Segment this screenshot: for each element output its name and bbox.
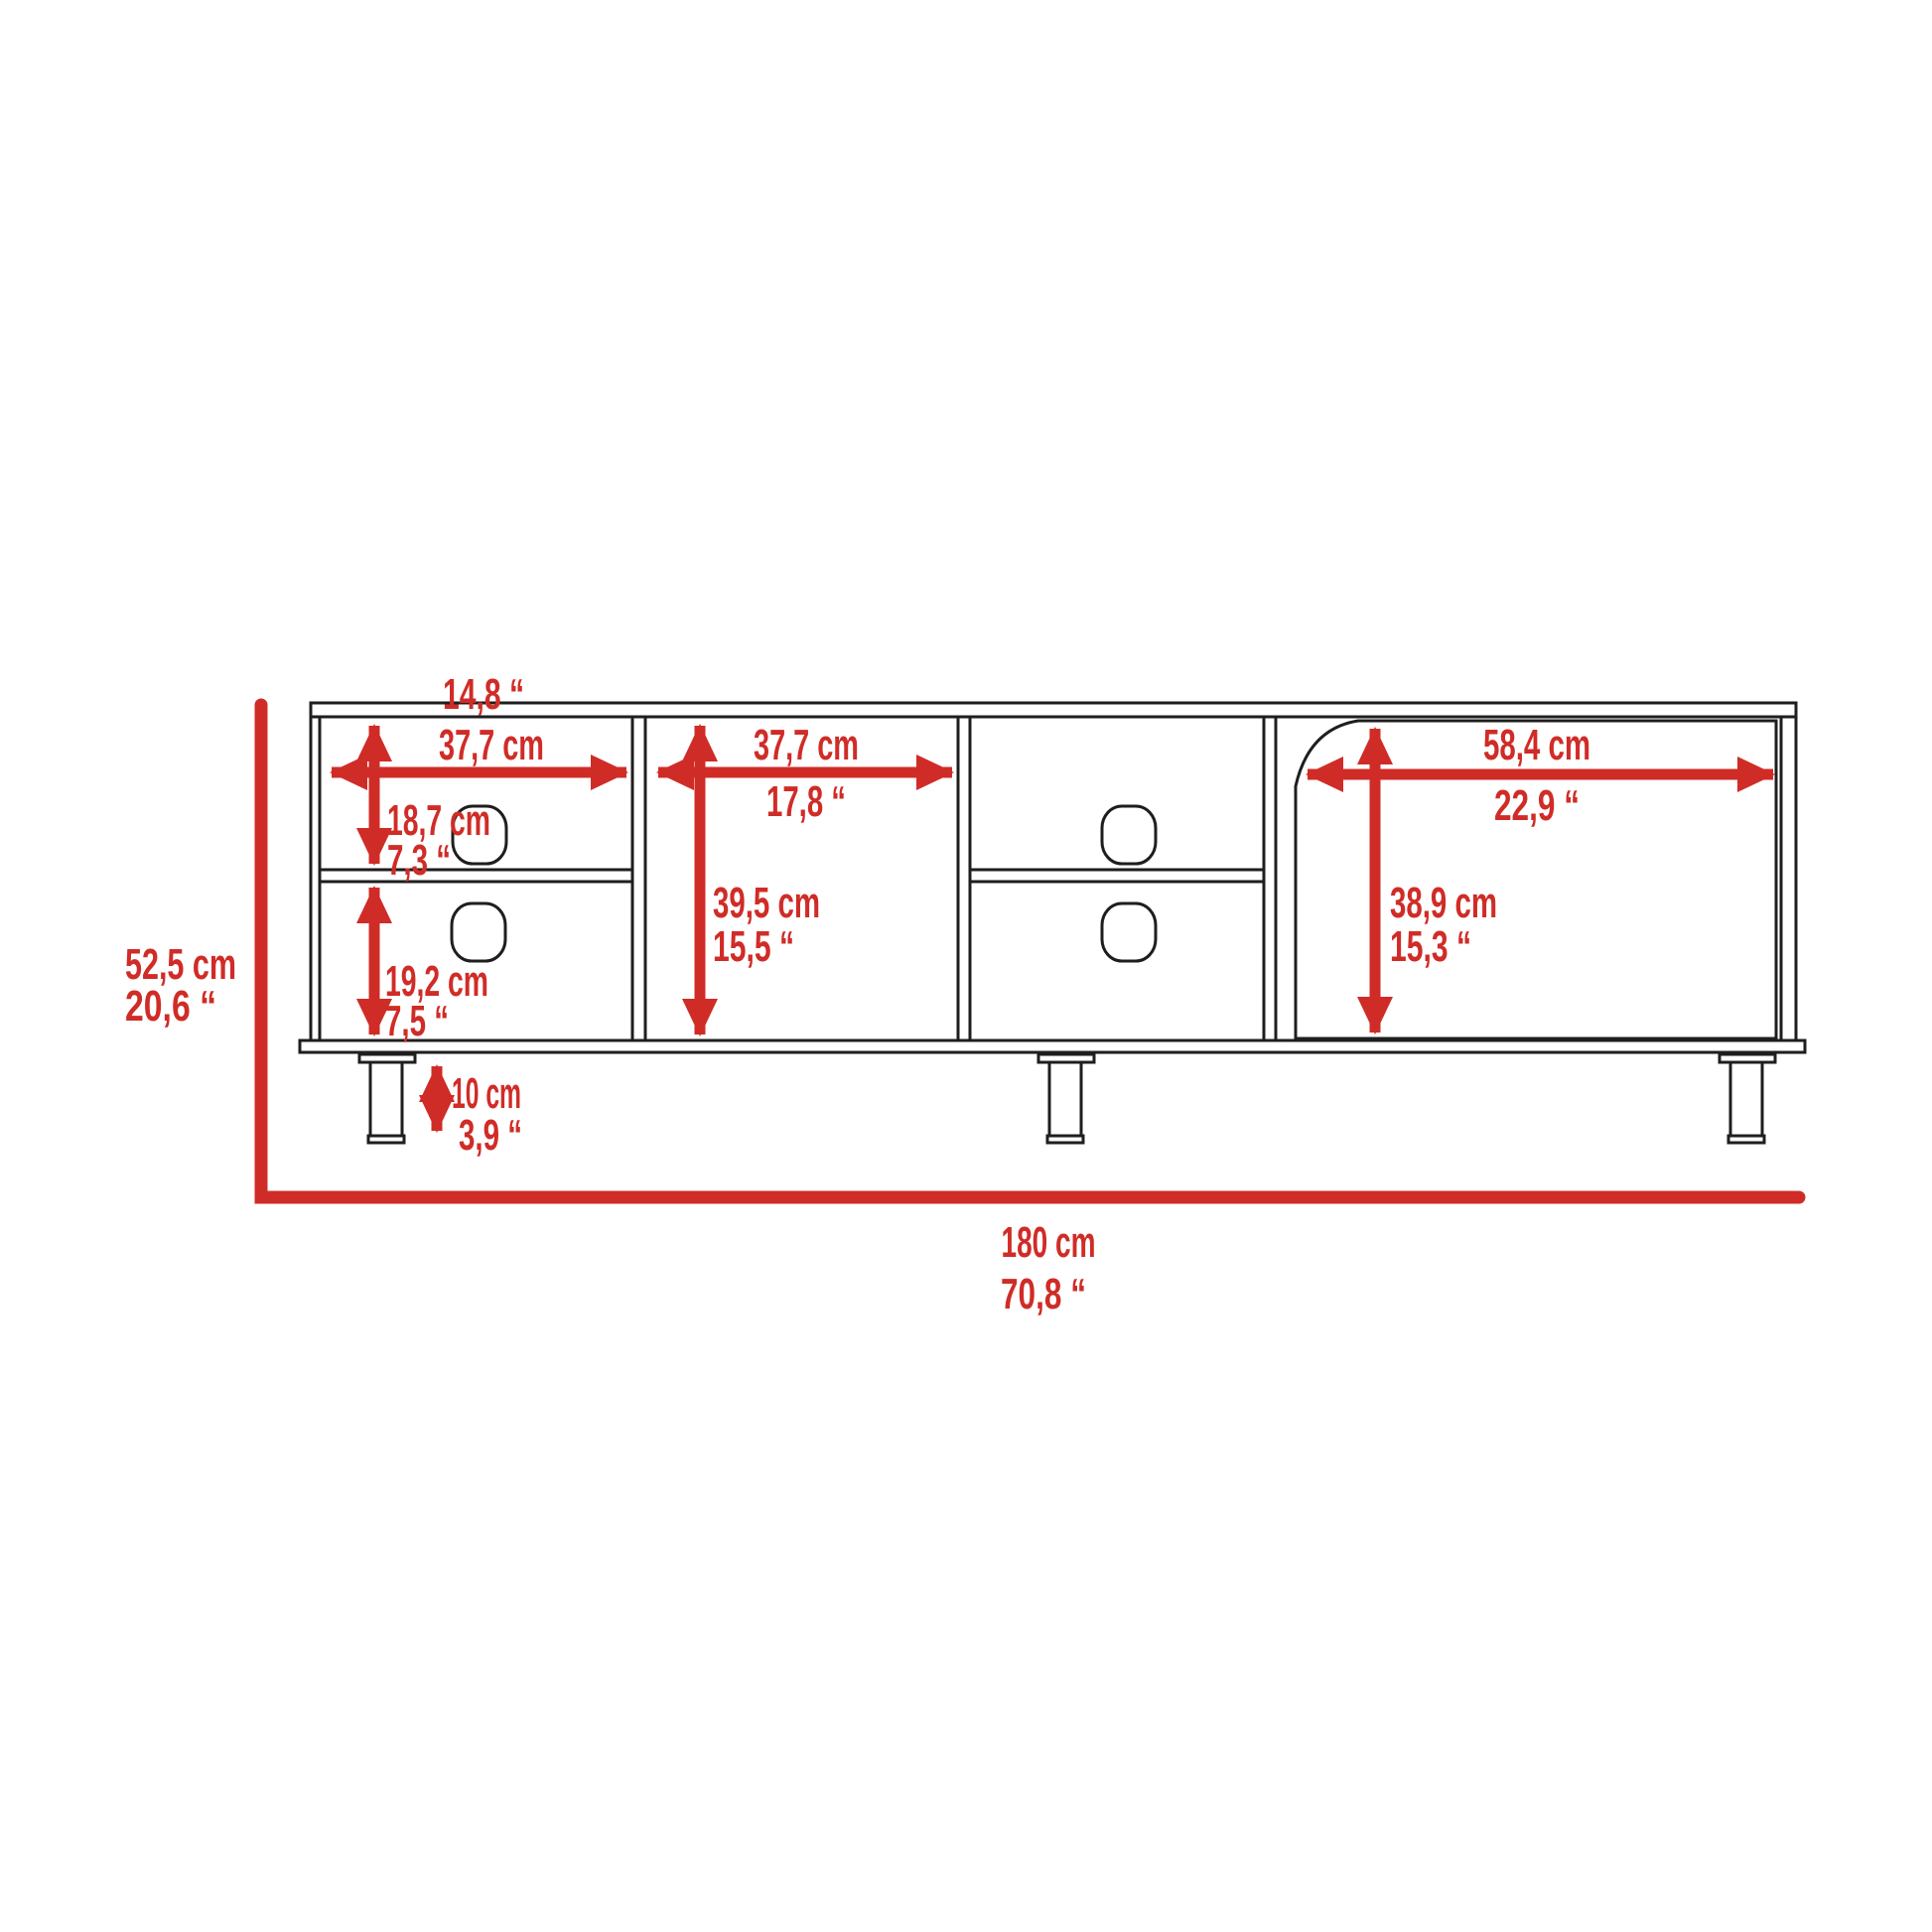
cable-hole-middle-upper bbox=[1102, 806, 1156, 864]
label-section1-width-in: 14,8 “ bbox=[443, 670, 524, 719]
label-lower-shelf-height-in: 7,5 “ bbox=[385, 997, 449, 1045]
label-door-height-cm: 38,9 cm bbox=[1390, 879, 1497, 927]
leg-left-cap bbox=[368, 1136, 404, 1143]
leg-right-cap bbox=[1728, 1136, 1764, 1143]
label-door-width-in: 22,9 “ bbox=[1494, 781, 1580, 830]
bottom-panel bbox=[300, 1040, 1805, 1052]
tv-stand-dimension-diagram: 14,8 “ 37,7 cm 37,7 cm 17,8 “ 58,4 cm 22… bbox=[0, 0, 1932, 1932]
label-door-width-cm: 58,4 cm bbox=[1483, 721, 1590, 769]
leg-left-body bbox=[370, 1062, 402, 1136]
label-overall-width-cm: 180 cm bbox=[1002, 1218, 1096, 1267]
leg-left bbox=[359, 1054, 415, 1143]
diagram-canvas: 14,8 “ 37,7 cm 37,7 cm 17,8 “ 58,4 cm 22… bbox=[0, 0, 1932, 1932]
label-upper-shelf-height-in: 7,3 “ bbox=[387, 836, 451, 885]
label-leg-height-in: 3,9 “ bbox=[459, 1111, 522, 1160]
leg-center-body bbox=[1049, 1062, 1081, 1136]
label-overall-width-in: 70,8 “ bbox=[1001, 1270, 1086, 1318]
label-inner-height-in: 15,5 “ bbox=[713, 922, 794, 971]
label-door-height-in: 15,3 “ bbox=[1390, 922, 1471, 971]
cable-hole-left-lower bbox=[452, 903, 505, 961]
label-section2-width-in: 17,8 “ bbox=[766, 777, 846, 826]
leg-right bbox=[1720, 1054, 1775, 1143]
label-section1-width-cm: 37,7 cm bbox=[439, 721, 544, 769]
leg-right-body bbox=[1730, 1062, 1762, 1136]
leg-center-cap bbox=[1047, 1136, 1083, 1143]
label-overall-height-in: 20,6 “ bbox=[125, 982, 216, 1031]
leg-center bbox=[1038, 1054, 1094, 1143]
label-section2-width-cm: 37,7 cm bbox=[754, 721, 859, 769]
cable-hole-middle-lower bbox=[1102, 903, 1156, 961]
label-inner-height-cm: 39,5 cm bbox=[713, 879, 820, 927]
